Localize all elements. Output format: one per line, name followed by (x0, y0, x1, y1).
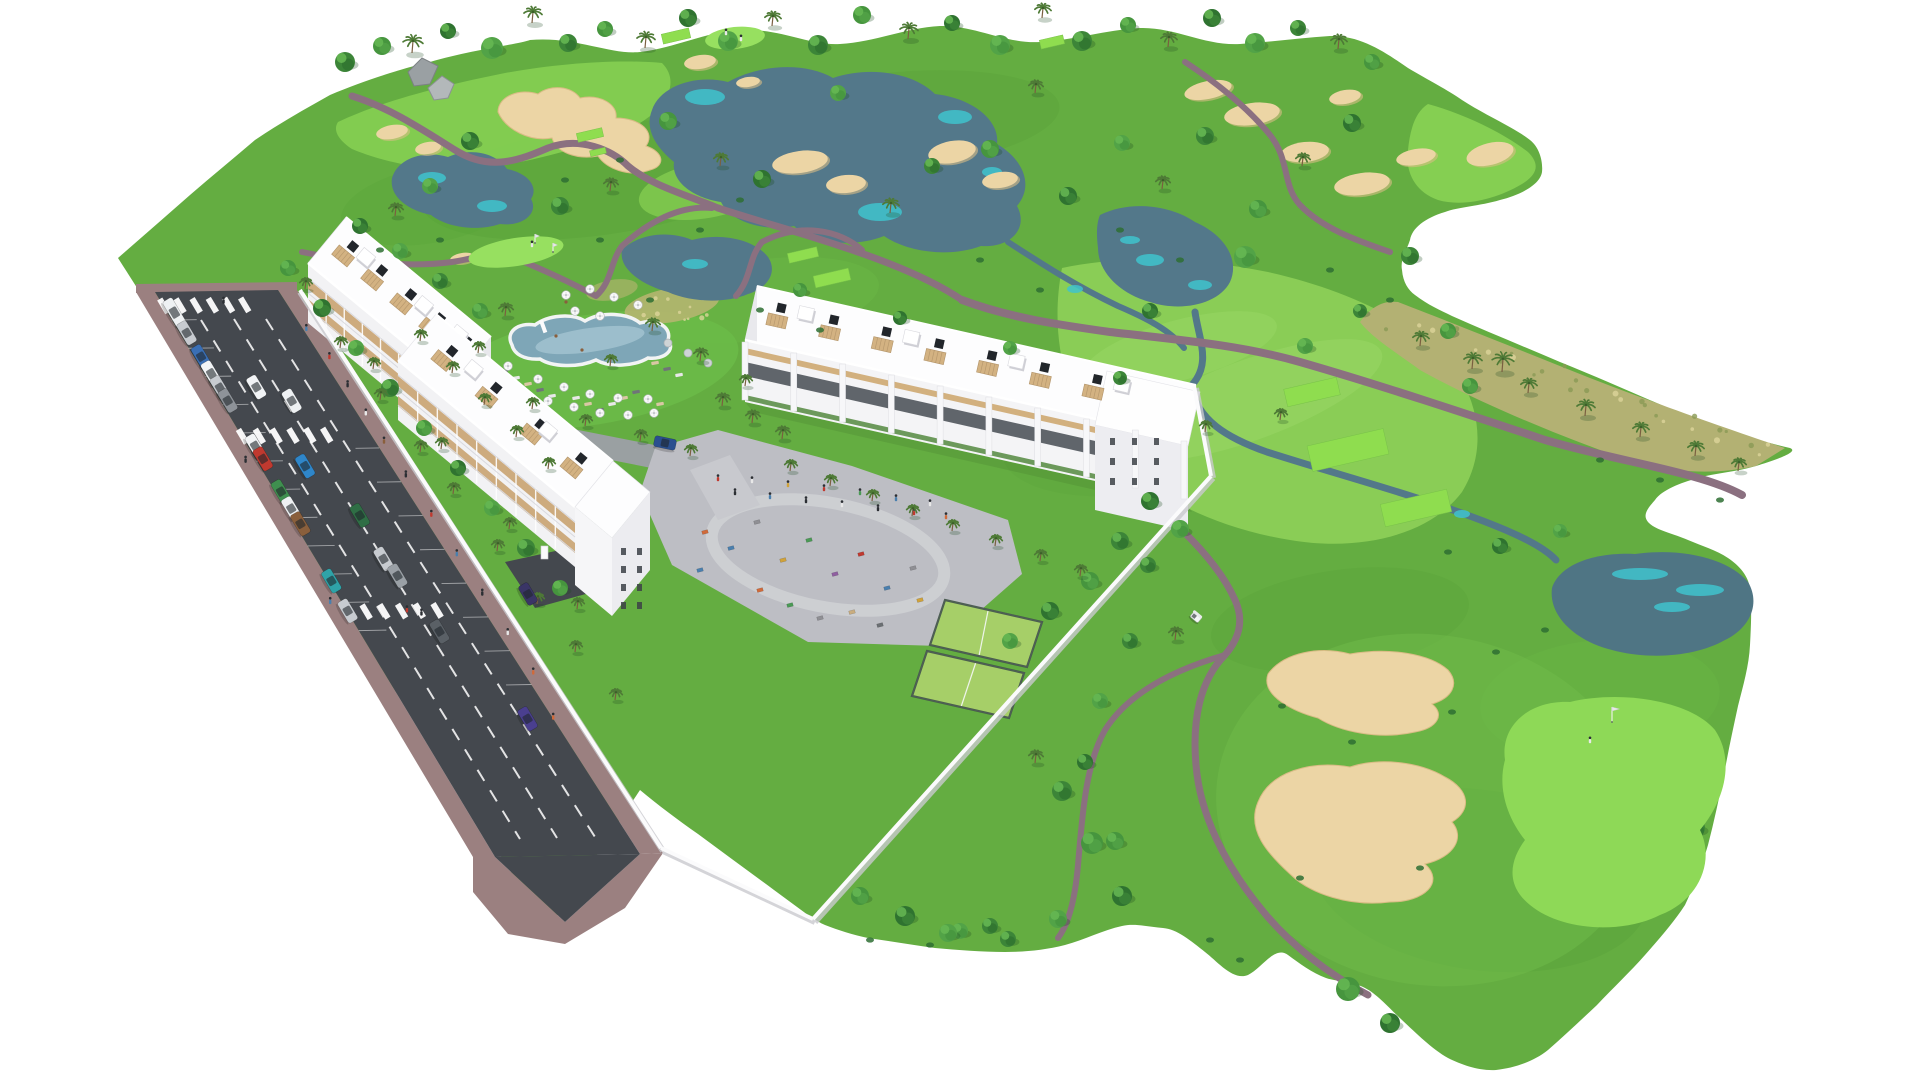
scrub-speckle (1486, 349, 1491, 354)
turquoise-patch (1120, 236, 1140, 244)
tree (597, 21, 616, 37)
umbrella (504, 362, 513, 371)
window (1154, 478, 1159, 485)
golfer (740, 35, 743, 42)
turquoise-patch (1654, 602, 1690, 612)
shrub (646, 297, 654, 302)
shrub (436, 237, 444, 242)
person (805, 496, 808, 503)
turquoise-patch (938, 110, 972, 124)
scrub-speckle (1474, 348, 1478, 352)
turquoise-patch (1676, 584, 1724, 596)
shrub (1448, 709, 1456, 714)
person (877, 504, 880, 511)
window (637, 548, 642, 555)
scrub-speckle (1654, 414, 1658, 418)
scrub-speckle (654, 296, 658, 300)
scrub-speckle (1562, 364, 1566, 368)
arcade-pier (1083, 419, 1089, 477)
window (1132, 458, 1137, 465)
umbrella (586, 390, 595, 399)
pedestrian (244, 456, 247, 463)
gate-pillar (541, 546, 548, 559)
shrub (1444, 549, 1452, 554)
scrub-speckle (1766, 442, 1770, 446)
scrub-speckle (1613, 391, 1619, 397)
pedestrian (430, 510, 433, 517)
pedestrian (532, 667, 535, 674)
person (564, 300, 567, 303)
tree (335, 52, 359, 72)
palm-tree (1035, 3, 1052, 22)
person (929, 499, 932, 506)
scrub-speckle (1532, 373, 1535, 376)
scrub-speckle (1692, 414, 1697, 419)
scrub-speckle (655, 311, 660, 316)
window (1110, 438, 1115, 445)
parasol (684, 349, 692, 357)
arcade-pier (1181, 441, 1187, 499)
scrub-speckle (699, 315, 704, 320)
shrub (376, 247, 384, 252)
window (1110, 458, 1115, 465)
person (895, 494, 898, 501)
person (841, 500, 844, 507)
arcade-pier (791, 353, 797, 411)
turquoise-patch (1136, 254, 1164, 266)
shrub (561, 177, 569, 182)
scrub-speckle (1584, 388, 1589, 393)
shrub (616, 157, 624, 162)
scrub-speckle (666, 297, 670, 301)
window (621, 548, 626, 555)
scrub-speckle (1430, 328, 1435, 333)
golfer (531, 241, 534, 248)
pedestrian (328, 352, 331, 359)
shrub (926, 942, 934, 947)
scrub-speckle (687, 317, 690, 320)
scrub-speckle (641, 313, 645, 317)
pedestrian (305, 324, 308, 331)
person (751, 476, 754, 483)
person (859, 488, 862, 495)
window (621, 602, 626, 609)
shrub (1296, 875, 1304, 880)
window (637, 584, 642, 591)
umbrella (534, 375, 543, 384)
shrub (1416, 865, 1424, 870)
arcade-pier (888, 375, 894, 433)
umbrella (614, 394, 623, 403)
shrub (1716, 497, 1724, 502)
window (637, 602, 642, 609)
pedestrian (222, 297, 225, 304)
pedestrian (383, 436, 386, 443)
tree (1401, 247, 1422, 265)
umbrella (634, 301, 643, 310)
shrub (1348, 739, 1356, 744)
palm-tree (765, 11, 782, 30)
tree (440, 23, 459, 39)
pedestrian (552, 713, 555, 720)
arcade-pier (937, 386, 943, 444)
arcade-pier (1035, 408, 1041, 466)
tree (679, 9, 700, 27)
shrub (866, 937, 874, 942)
scrub-speckle (678, 311, 681, 314)
scrub-speckle (1758, 453, 1761, 456)
turquoise-patch (1188, 280, 1212, 290)
scrub-speckle (1749, 443, 1754, 448)
scrub-speckle (683, 318, 686, 321)
tree (853, 6, 874, 24)
umbrella (610, 293, 619, 302)
person (554, 334, 557, 337)
render-canvas: Aerial 3D masterplan render: white apart… (0, 0, 1920, 1080)
palm-tree (524, 7, 543, 28)
umbrella (596, 312, 605, 321)
umbrella (644, 395, 653, 404)
scrub-speckle (1662, 420, 1666, 424)
scrub-speckle (1618, 397, 1623, 402)
person (717, 474, 720, 481)
pedestrian (405, 470, 408, 477)
scrub-speckle (1568, 387, 1573, 392)
umbrella (624, 411, 633, 420)
tree (559, 34, 580, 52)
palm-tree (637, 32, 656, 53)
arcade-pier (986, 397, 992, 455)
scrub-speckle (1540, 369, 1545, 374)
tree (373, 37, 394, 55)
scrub-speckle (705, 313, 709, 317)
window (1154, 438, 1159, 445)
umbrella (562, 291, 571, 300)
pedestrian (506, 628, 509, 635)
shrub (1116, 227, 1124, 232)
scrub-speckle (1717, 427, 1722, 432)
pedestrian (365, 408, 368, 415)
turquoise-patch (1067, 285, 1083, 293)
shrub (1036, 287, 1044, 292)
putting-green-main (1502, 697, 1725, 927)
scrub-speckle (1643, 403, 1647, 407)
pedestrian (455, 549, 458, 556)
window (1154, 458, 1159, 465)
person (580, 348, 583, 351)
golfer (1589, 737, 1592, 744)
scrub-speckle (1384, 327, 1388, 331)
umbrella (650, 409, 659, 418)
window (1132, 478, 1137, 485)
turquoise-patch (685, 89, 725, 105)
scrub-speckle (1725, 430, 1728, 433)
window (637, 566, 642, 573)
pedestrian (406, 605, 409, 612)
shrub (976, 257, 984, 262)
scrub-speckle (1714, 437, 1720, 443)
pedestrian (346, 380, 349, 387)
turquoise-patch (1612, 568, 1668, 580)
shrub (1278, 703, 1286, 708)
person (769, 492, 772, 499)
window (1132, 438, 1137, 445)
palm-tree (403, 35, 424, 59)
shrub (1492, 649, 1500, 654)
umbrella (571, 307, 580, 316)
turquoise-patch (477, 200, 507, 212)
scrub-speckle (1417, 323, 1421, 327)
golfer (725, 29, 728, 36)
pedestrian (420, 608, 423, 615)
shrub (696, 227, 704, 232)
window (1110, 478, 1115, 485)
umbrella (586, 285, 595, 294)
shrub (596, 237, 604, 242)
person (734, 488, 737, 495)
shrub (1541, 627, 1549, 632)
window (621, 566, 626, 573)
parasol (664, 339, 672, 347)
umbrella (570, 403, 579, 412)
window (621, 584, 626, 591)
tree (1120, 17, 1139, 33)
golf-greens-layer (1502, 697, 1725, 927)
person (945, 512, 948, 519)
shrub (736, 197, 744, 202)
pedestrian (481, 589, 484, 596)
shrub (756, 307, 764, 312)
shrub (1656, 477, 1664, 482)
umbrella (596, 409, 605, 418)
tree (1290, 20, 1309, 36)
shrub (1386, 297, 1394, 302)
shrub (1236, 957, 1244, 962)
scrub-speckle (1690, 427, 1694, 431)
scrub-speckle (689, 306, 692, 309)
masterplan-aerial-render (0, 0, 1920, 1080)
umbrella (560, 383, 569, 392)
shrub (816, 327, 824, 332)
arcade-pier (840, 364, 846, 422)
person (787, 480, 790, 487)
tree (944, 15, 963, 31)
person (823, 484, 826, 491)
shrub (1596, 457, 1604, 462)
shrub (1206, 937, 1214, 942)
arcade-pier (742, 342, 748, 400)
turquoise-patch (1454, 510, 1470, 518)
shrub (1176, 257, 1184, 262)
scrub-speckle (1574, 378, 1578, 382)
pedestrian (329, 597, 332, 604)
shrub (1326, 267, 1334, 272)
tree (1203, 9, 1224, 27)
turquoise-patch (682, 259, 708, 269)
